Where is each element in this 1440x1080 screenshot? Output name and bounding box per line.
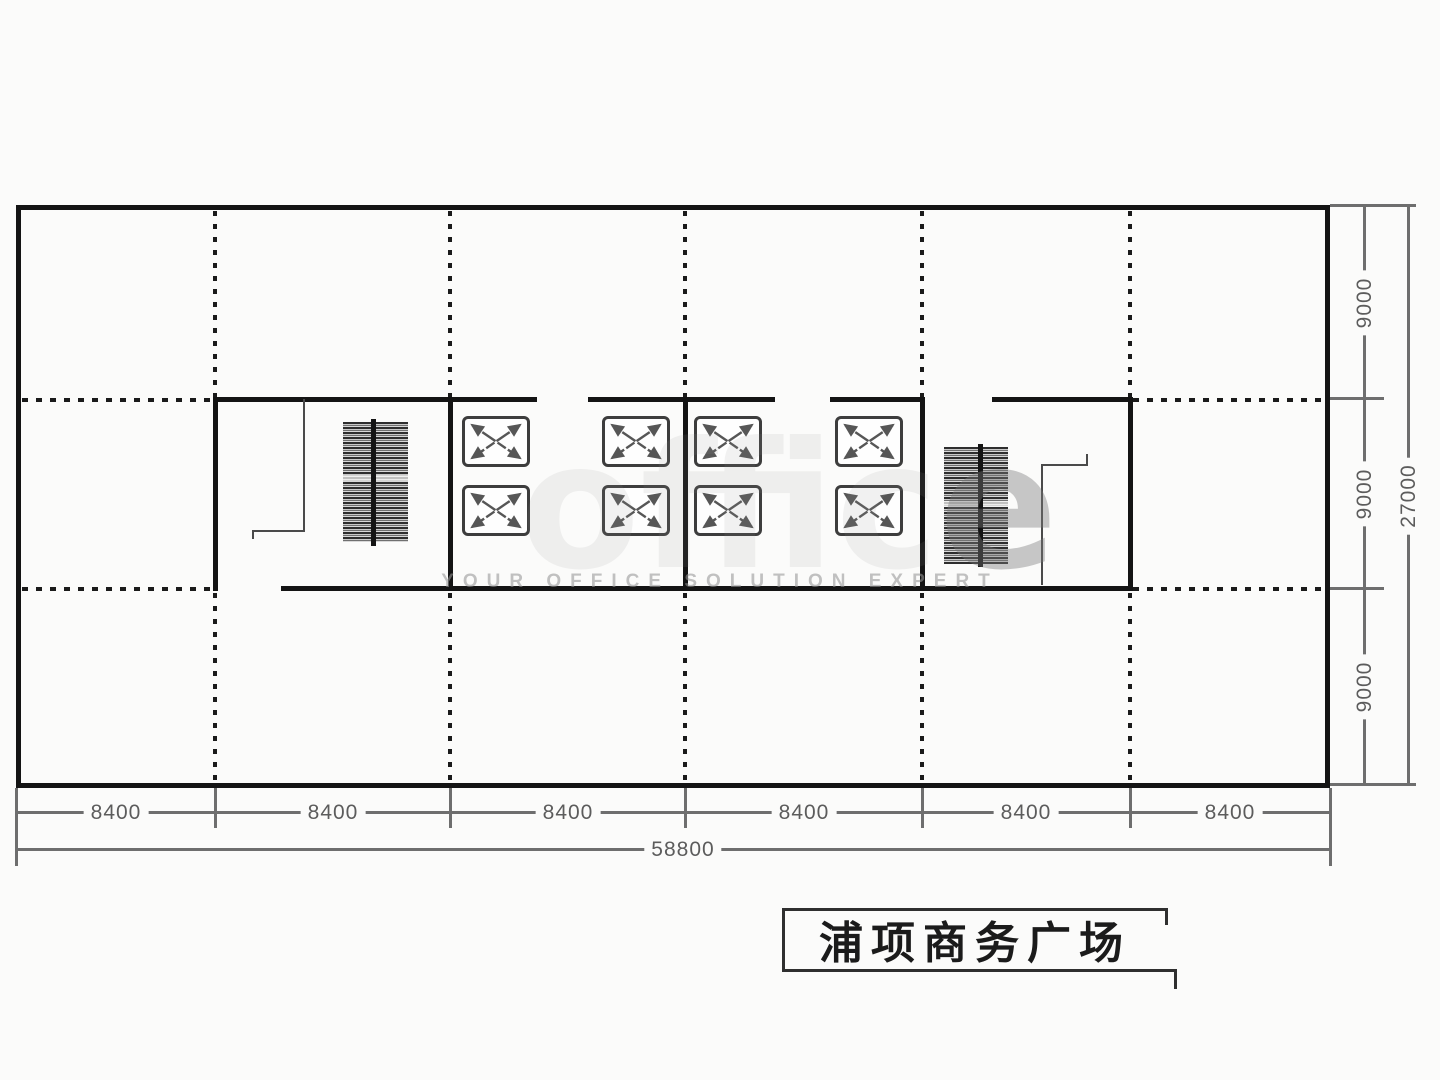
column-grid-line xyxy=(1128,211,1132,397)
dim-label-bay: 8400 xyxy=(994,801,1059,825)
core-wall xyxy=(1128,397,1133,591)
elevator-shaft xyxy=(835,485,903,536)
core-wall xyxy=(992,397,1131,402)
stair-handrail xyxy=(1041,464,1043,585)
stair-handrail xyxy=(303,399,305,532)
elevator-x-icon xyxy=(465,419,527,464)
elevator-x-icon xyxy=(605,419,667,464)
elevator-shaft xyxy=(694,485,762,536)
dim-extension-tick xyxy=(214,788,217,828)
elevator-x-icon xyxy=(697,488,759,533)
dim-label-bay: 9000 xyxy=(1353,655,1377,720)
core-wall xyxy=(920,397,925,591)
dim-extension-tick xyxy=(15,788,18,866)
dim-extension-tick xyxy=(1330,587,1384,590)
dim-line-bottom-bays xyxy=(16,811,1330,814)
dim-extension-tick xyxy=(684,788,687,828)
drawing-title: 浦项商务广场 xyxy=(785,908,1165,970)
row-grid-line xyxy=(1133,398,1327,402)
elevator-shaft xyxy=(462,416,530,467)
stair-handrail xyxy=(252,530,305,532)
stair-center-line xyxy=(978,444,983,567)
column-grid-line xyxy=(920,211,924,397)
column-grid-line xyxy=(683,211,687,397)
column-grid-line xyxy=(1128,593,1132,781)
dim-extension-tick xyxy=(449,788,452,828)
stair-center-line xyxy=(371,419,376,546)
dim-label-bay: 9000 xyxy=(1353,462,1377,527)
column-grid-line xyxy=(920,593,924,781)
stair-handrail xyxy=(1041,464,1088,466)
floor-plan-sheet: 8400 8400 8400 8400 8400 8400 58800 9000… xyxy=(0,0,1440,1080)
core-wall xyxy=(213,397,218,591)
core-wall xyxy=(213,397,537,402)
dim-label-bay: 8400 xyxy=(84,801,149,825)
core-wall xyxy=(683,397,688,591)
column-grid-line xyxy=(213,593,217,781)
core-wall xyxy=(448,397,453,591)
dim-label-bay: 8400 xyxy=(1198,801,1263,825)
elevator-x-icon xyxy=(465,488,527,533)
stair-handrail xyxy=(252,530,254,539)
stair-landing xyxy=(944,501,1008,507)
column-grid-line xyxy=(683,593,687,781)
elevator-shaft xyxy=(602,485,670,536)
core-wall xyxy=(588,397,775,402)
row-grid-line xyxy=(22,587,213,591)
column-grid-line xyxy=(213,211,217,397)
elevator-shaft xyxy=(694,416,762,467)
title-box-border xyxy=(1165,908,1168,925)
column-grid-line xyxy=(448,211,452,397)
row-grid-line xyxy=(1133,587,1327,591)
dim-extension-tick xyxy=(1330,397,1384,400)
elevator-shaft xyxy=(602,416,670,467)
core-wall xyxy=(281,586,1131,591)
elevator-shaft xyxy=(835,416,903,467)
stair-handrail xyxy=(1086,454,1088,466)
dim-label-bay: 8400 xyxy=(536,801,601,825)
dim-label-total-height: 27000 xyxy=(1397,457,1421,534)
dim-extension-tick xyxy=(1330,783,1416,786)
dim-extension-tick xyxy=(1129,788,1132,828)
dim-label-bay: 8400 xyxy=(301,801,366,825)
elevator-shaft xyxy=(462,485,530,536)
column-grid-line xyxy=(448,593,452,781)
row-grid-line xyxy=(22,398,213,402)
dim-label-total-width: 58800 xyxy=(644,838,721,862)
elevator-x-icon xyxy=(605,488,667,533)
elevator-x-icon xyxy=(697,419,759,464)
dim-label-bay: 8400 xyxy=(772,801,837,825)
title-box-border xyxy=(1174,969,1177,989)
elevator-x-icon xyxy=(838,488,900,533)
dim-extension-tick xyxy=(1329,788,1332,866)
dim-label-bay: 9000 xyxy=(1353,271,1377,336)
dim-extension-tick xyxy=(1330,204,1416,207)
dim-extension-tick xyxy=(921,788,924,828)
core-wall xyxy=(830,397,923,402)
elevator-x-icon xyxy=(838,419,900,464)
